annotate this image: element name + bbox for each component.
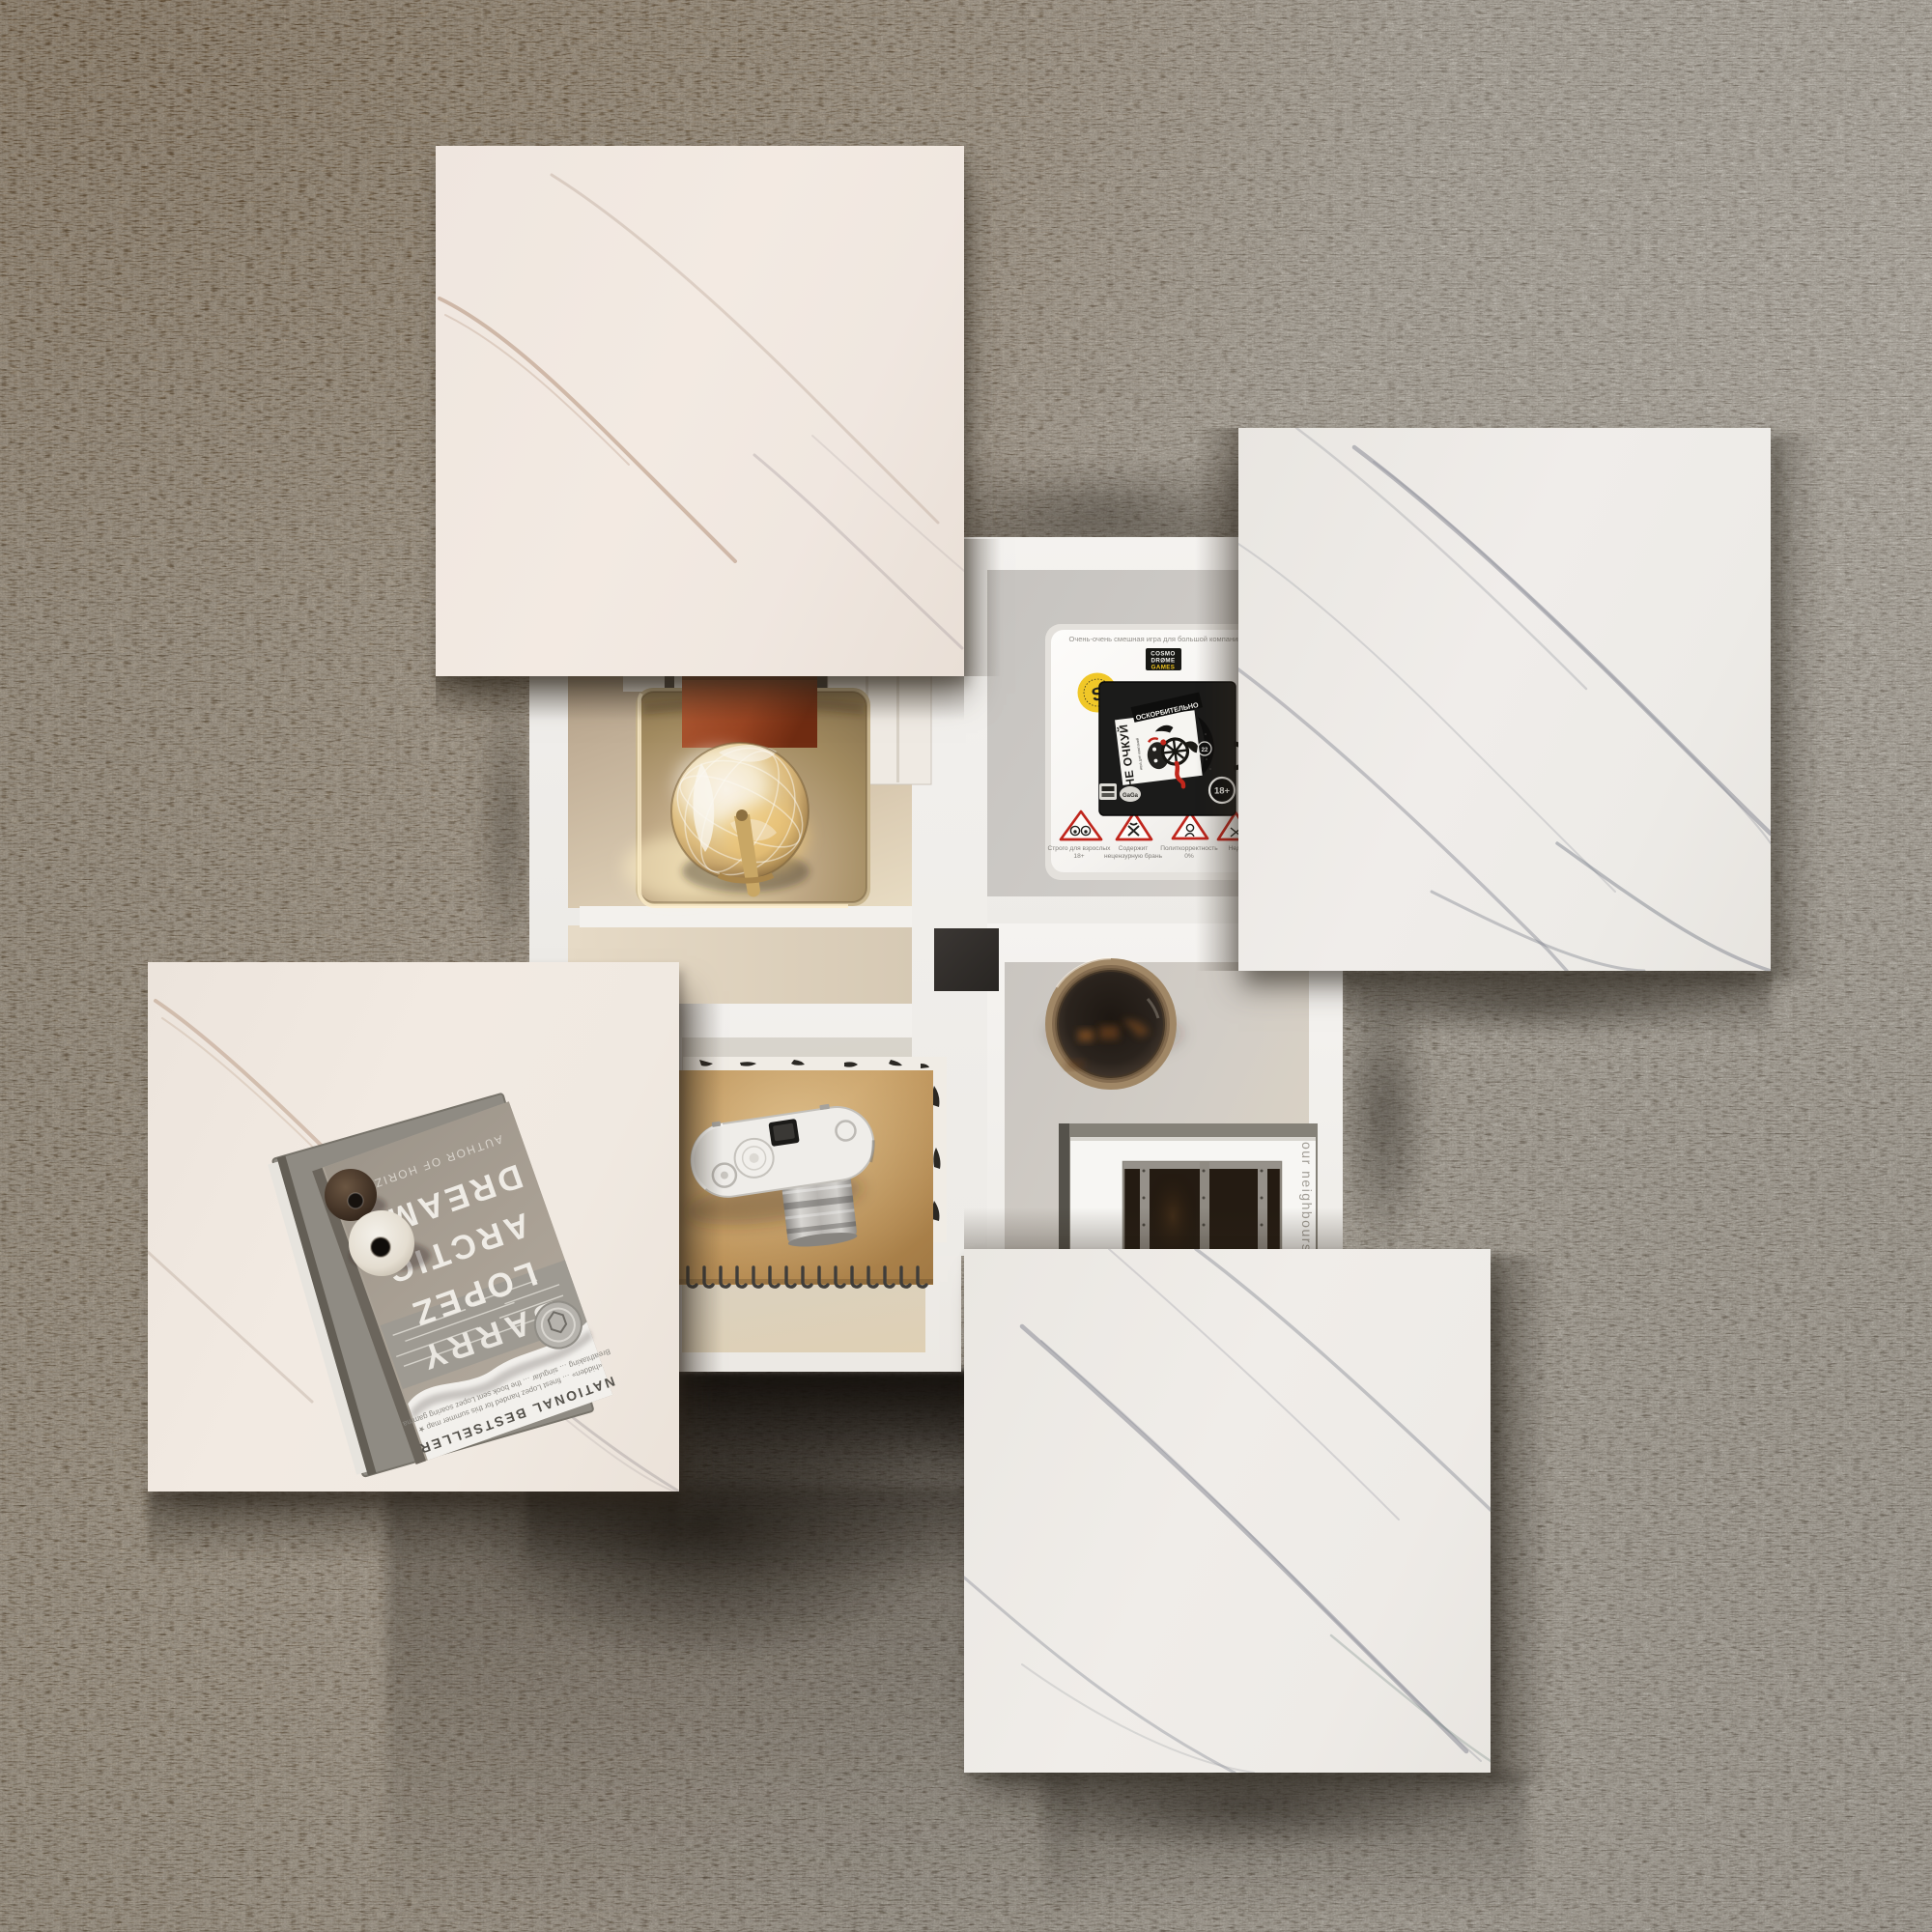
svg-text:18+: 18+ bbox=[1073, 853, 1084, 860]
svg-text:0%: 0% bbox=[1184, 853, 1194, 860]
svg-text:GaGa: GaGa bbox=[1122, 793, 1139, 799]
svg-text:COSMO: COSMO bbox=[1151, 651, 1175, 658]
svg-text:DRØME: DRØME bbox=[1151, 658, 1175, 665]
svg-text:GAMES: GAMES bbox=[1151, 665, 1176, 671]
svg-text:Строго для взрослых: Строго для взрослых bbox=[1048, 845, 1112, 852]
svg-text:нецензурную брань: нецензурную брань bbox=[1104, 852, 1163, 860]
svg-text:Содержит: Содержит bbox=[1119, 845, 1149, 852]
